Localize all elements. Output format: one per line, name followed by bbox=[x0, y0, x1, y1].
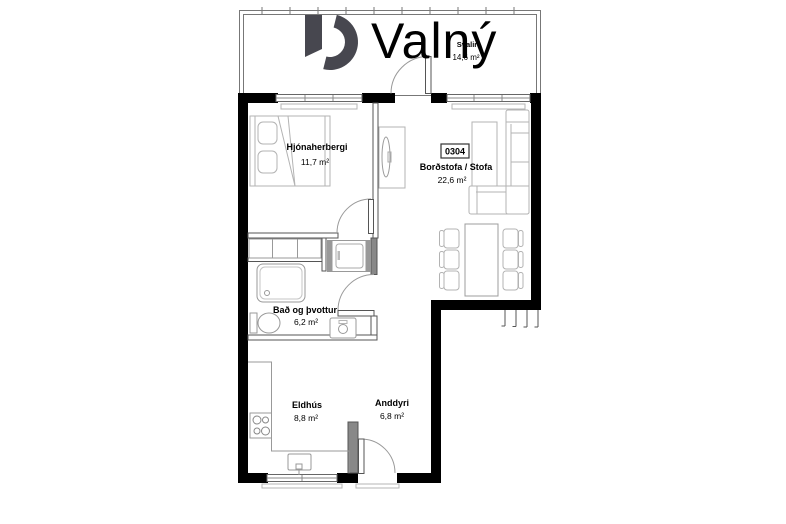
floor-plan-page: Svalir 14,6 m² Hjónaherbergi 11,7 m² 030… bbox=[0, 0, 786, 524]
kitchen-area: 8,8 m² bbox=[294, 413, 318, 423]
entrance-area: 6,8 m² bbox=[380, 411, 404, 421]
shower bbox=[257, 264, 305, 302]
living-room-furniture bbox=[379, 110, 529, 296]
entrance-label: Anddyri bbox=[375, 398, 409, 408]
logo-text: Valný bbox=[371, 13, 497, 69]
bathroom-door bbox=[338, 275, 374, 317]
chair bbox=[440, 271, 460, 290]
bathroom-label: Bað og þvottur bbox=[273, 305, 337, 315]
logo: Valný bbox=[305, 13, 497, 76]
kitchen-label: Eldhús bbox=[292, 400, 322, 410]
floor-plan-drawing: Svalir 14,6 m² Hjónaherbergi 11,7 m² 030… bbox=[0, 0, 786, 524]
dining-set bbox=[440, 224, 524, 296]
kitchen-sink bbox=[288, 454, 311, 475]
laundry-unit bbox=[327, 240, 371, 272]
living-room-area: 22,6 m² bbox=[438, 175, 467, 185]
washbasin bbox=[330, 318, 356, 338]
chair bbox=[503, 229, 523, 248]
chair bbox=[440, 250, 460, 269]
chair bbox=[503, 271, 523, 290]
bedroom-area: 11,7 m² bbox=[301, 157, 329, 167]
tv-console bbox=[379, 127, 405, 188]
chair bbox=[503, 250, 523, 269]
logo-mark bbox=[305, 15, 364, 76]
stove bbox=[250, 413, 272, 438]
tick-marks bbox=[502, 310, 539, 327]
wardrobe bbox=[249, 239, 321, 258]
unit-number-badge: 0304 bbox=[441, 144, 469, 158]
toilet bbox=[250, 313, 280, 333]
kitchen-window bbox=[262, 475, 342, 489]
chair bbox=[440, 229, 460, 248]
living-room-label: Borðstofa / Stofa bbox=[420, 162, 493, 172]
entrance-door bbox=[359, 439, 396, 474]
coffee-table bbox=[472, 122, 497, 186]
living-room-window bbox=[447, 95, 530, 110]
bedroom-door bbox=[337, 199, 374, 234]
unit-number: 0304 bbox=[445, 147, 465, 157]
dining-table bbox=[465, 224, 498, 296]
entrance-threshold bbox=[356, 484, 399, 488]
bedroom-label: Hjónaherbergi bbox=[286, 142, 347, 152]
bedroom-window bbox=[276, 95, 362, 110]
bathroom-area: 6,2 m² bbox=[294, 317, 318, 327]
